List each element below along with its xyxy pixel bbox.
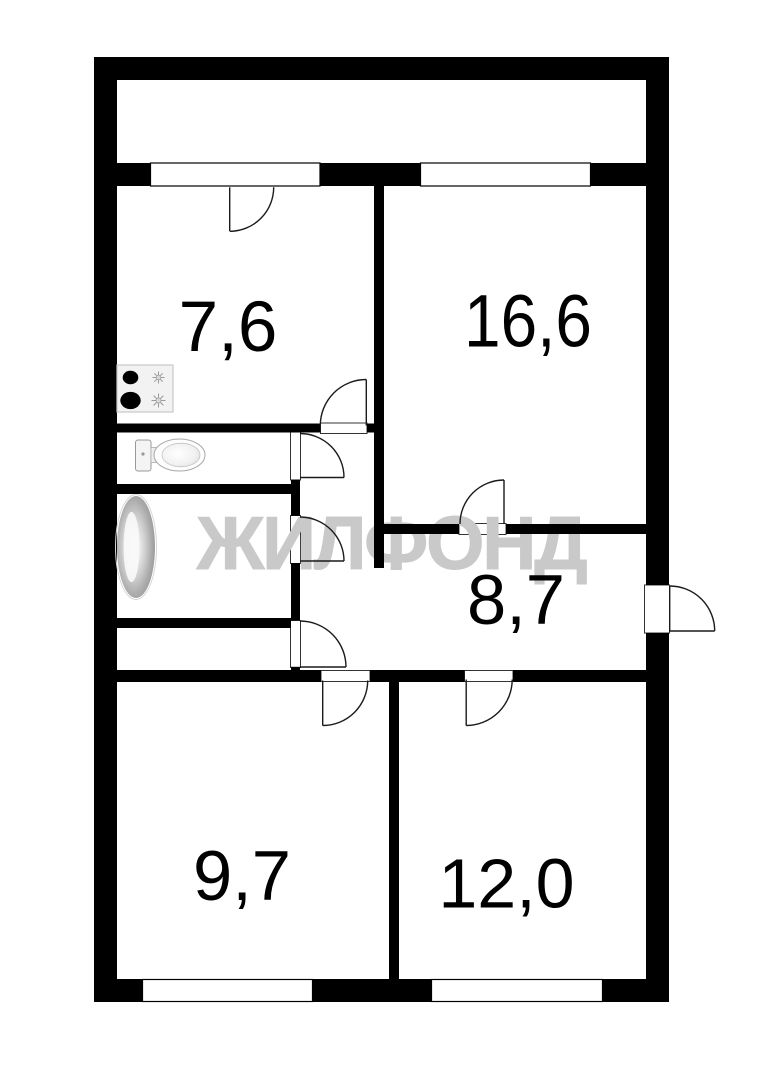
svg-text:16,6: 16,6 — [464, 280, 592, 363]
svg-text:8,7: 8,7 — [467, 560, 565, 639]
svg-text:12,0: 12,0 — [438, 845, 574, 923]
svg-text:9,7: 9,7 — [193, 836, 291, 915]
svg-text:7,6: 7,6 — [179, 288, 278, 367]
